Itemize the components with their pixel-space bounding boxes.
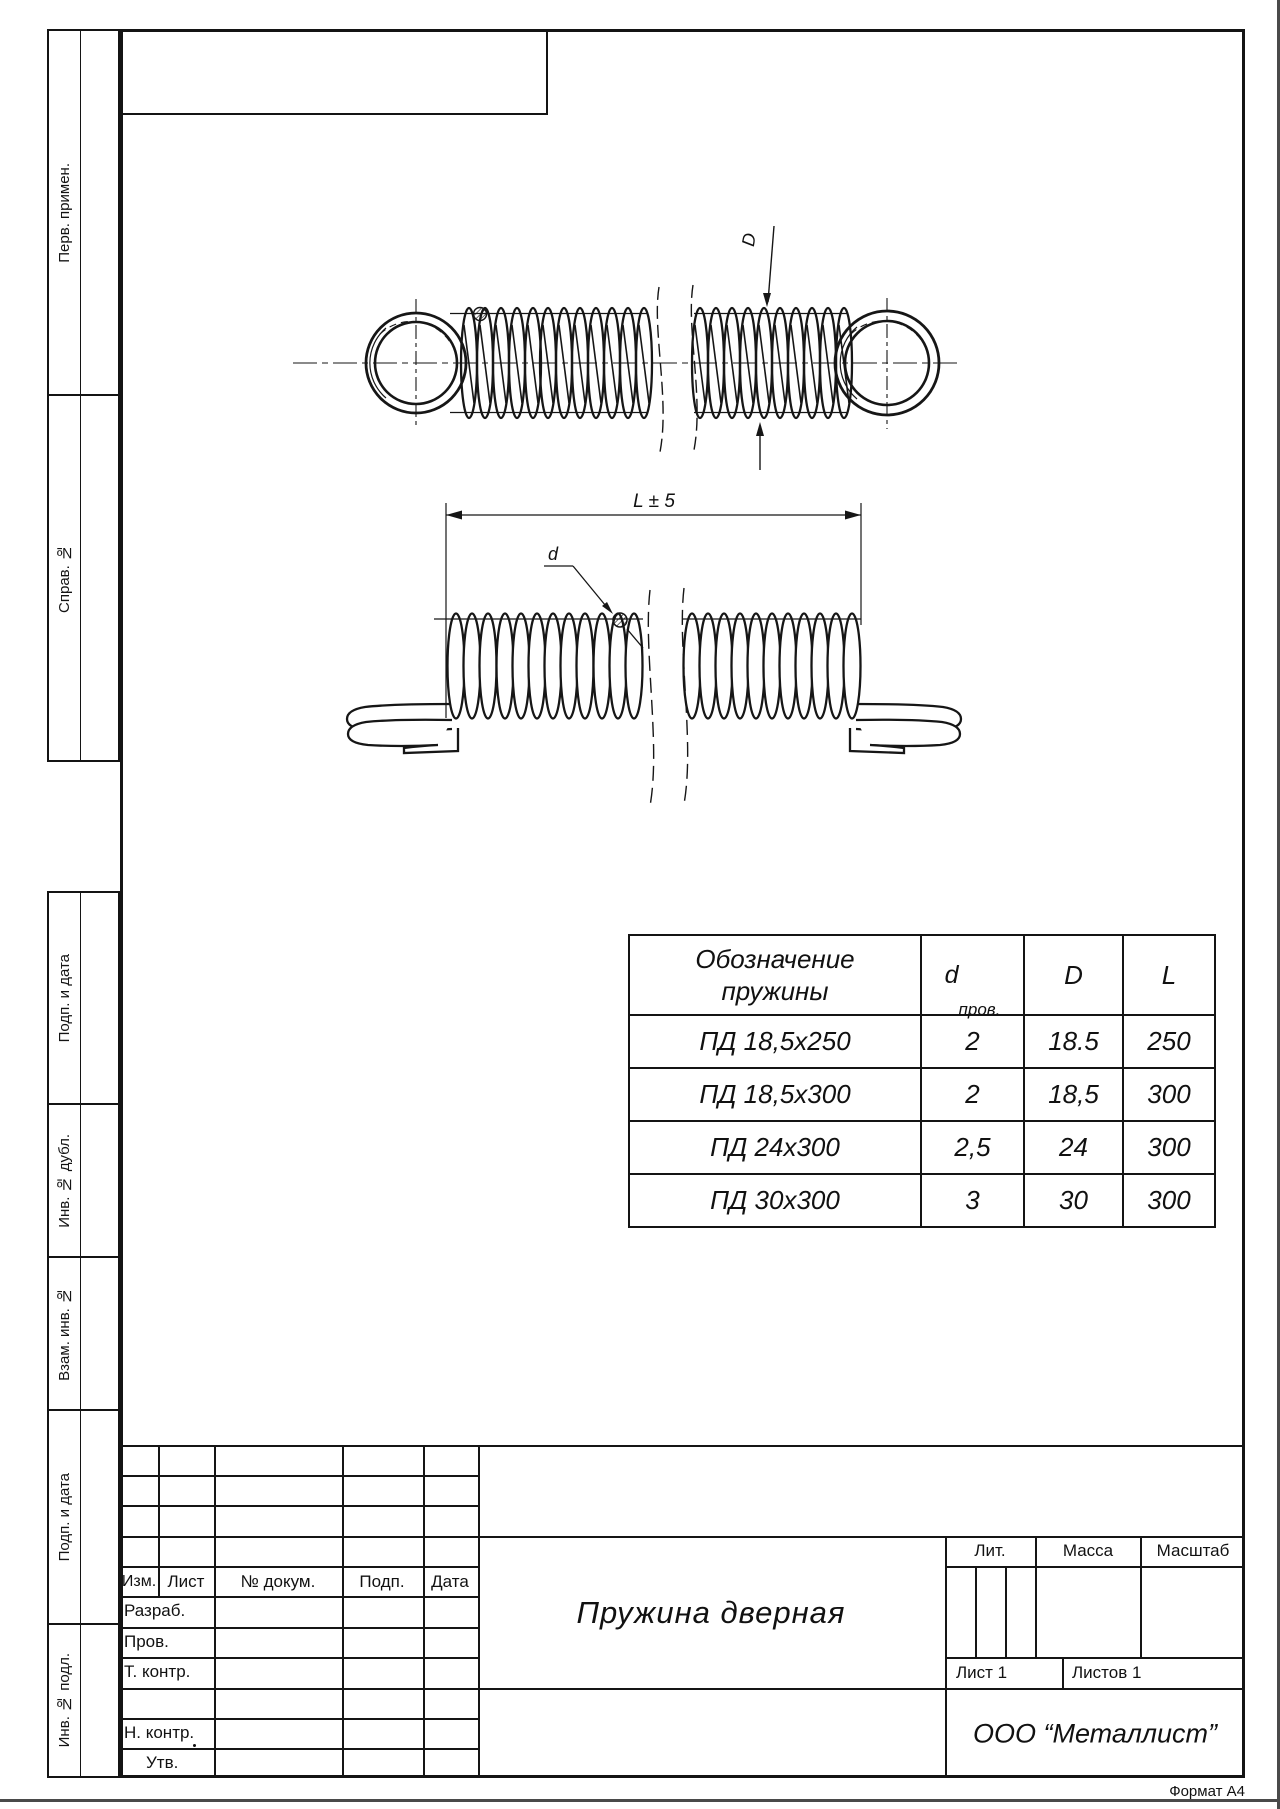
table-cell: 250 <box>1124 1016 1214 1069</box>
col-list: Лист <box>168 1572 205 1592</box>
lit-label: Лит. <box>974 1541 1005 1561</box>
title-block-line <box>945 1536 947 1778</box>
col-izm: Изм. <box>122 1573 156 1591</box>
col-data: Дата <box>431 1572 469 1592</box>
company-name: ООО “Металлист” <box>973 1719 1217 1750</box>
sheet-label: Лист 1 <box>956 1663 1007 1683</box>
hook-right <box>850 704 961 753</box>
table-cell: ПД 18,5х300 <box>630 1069 922 1122</box>
table-cell: 2,5 <box>922 1122 1025 1175</box>
col-header-outer-diameter: D <box>1025 936 1124 1016</box>
title-block-line <box>120 1688 1245 1690</box>
title-block-line <box>342 1445 344 1778</box>
table-cell: 300 <box>1124 1122 1214 1175</box>
row-utv: Утв. <box>146 1753 178 1773</box>
table-cell: 24 <box>1025 1122 1124 1175</box>
spring-top-view: D <box>293 226 962 470</box>
title-block-line <box>423 1445 425 1778</box>
format-label: Формат А4 <box>1045 1783 1245 1800</box>
title-block-line <box>158 1445 160 1596</box>
wire-section-top-view <box>474 308 487 321</box>
col-header-designation: Обозначение пружины <box>630 936 922 1016</box>
table-cell: 300 <box>1124 1069 1214 1122</box>
wire-section-bottom-view <box>613 613 627 627</box>
col-header-wire-diameter: dпров. <box>922 936 1025 1016</box>
table-cell: 18,5 <box>1025 1069 1124 1122</box>
row-n-kontr: Н. контр. <box>124 1723 194 1743</box>
drawing-sheet: Перв. примен. Справ. № Подп. и дата Инв.… <box>0 0 1280 1809</box>
title-block-line <box>975 1566 977 1657</box>
dim-label-L: L ± 5 <box>633 491 675 512</box>
table-cell: 300 <box>1124 1175 1214 1226</box>
table-cell: 3 <box>922 1175 1025 1226</box>
table-cell: ПД 30х300 <box>630 1175 922 1226</box>
title-block-line <box>945 1566 1245 1568</box>
spring-sizes-table: Обозначение пружины dпров. D L ПД 18,5х2… <box>628 934 1216 1228</box>
title-block-line <box>1140 1536 1142 1657</box>
row-t-kontr: Т. контр. <box>124 1662 190 1682</box>
mass-label: Масса <box>1063 1541 1113 1561</box>
title-block-line <box>945 1657 1245 1659</box>
title-block-line <box>120 1445 1245 1447</box>
title-block-line <box>478 1445 480 1778</box>
scale-label: Масштаб <box>1157 1541 1230 1561</box>
title-block-line <box>1005 1566 1007 1657</box>
dim-label-D: D <box>738 232 760 248</box>
col-podp: Подп. <box>359 1572 404 1592</box>
part-name: Пружина дверная <box>577 1595 846 1631</box>
col-header-length: L <box>1124 936 1214 1016</box>
title-block-line <box>120 1536 1245 1538</box>
table-cell: 30 <box>1025 1175 1124 1226</box>
dim-label-d: d <box>548 544 559 564</box>
table-cell: ПД 18,5х250 <box>630 1016 922 1069</box>
row-prov: Пров. <box>124 1632 169 1652</box>
table-cell: 2 <box>922 1069 1025 1122</box>
title-block-line <box>214 1445 216 1778</box>
table-cell: 2 <box>922 1016 1025 1069</box>
col-dokum: № докум. <box>241 1572 316 1592</box>
title-block-line <box>1035 1536 1037 1657</box>
hook-left <box>347 704 458 753</box>
artifact-dot <box>193 1744 196 1747</box>
row-razrab: Разраб. <box>124 1601 185 1621</box>
sheets-label: Листов 1 <box>1072 1663 1141 1683</box>
title-block-line <box>1062 1657 1064 1688</box>
spring-bottom-view: L ± 5 d <box>347 491 961 806</box>
table-cell: ПД 24х300 <box>630 1122 922 1175</box>
table-cell: 18.5 <box>1025 1016 1124 1069</box>
